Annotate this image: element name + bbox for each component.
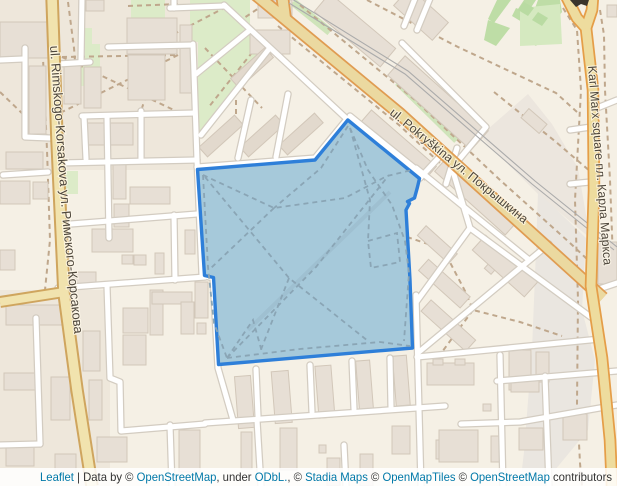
svg-text:Leaflet | Data by © OpenStreet: Leaflet | Data by © OpenStreetMap, under… <box>40 470 612 484</box>
